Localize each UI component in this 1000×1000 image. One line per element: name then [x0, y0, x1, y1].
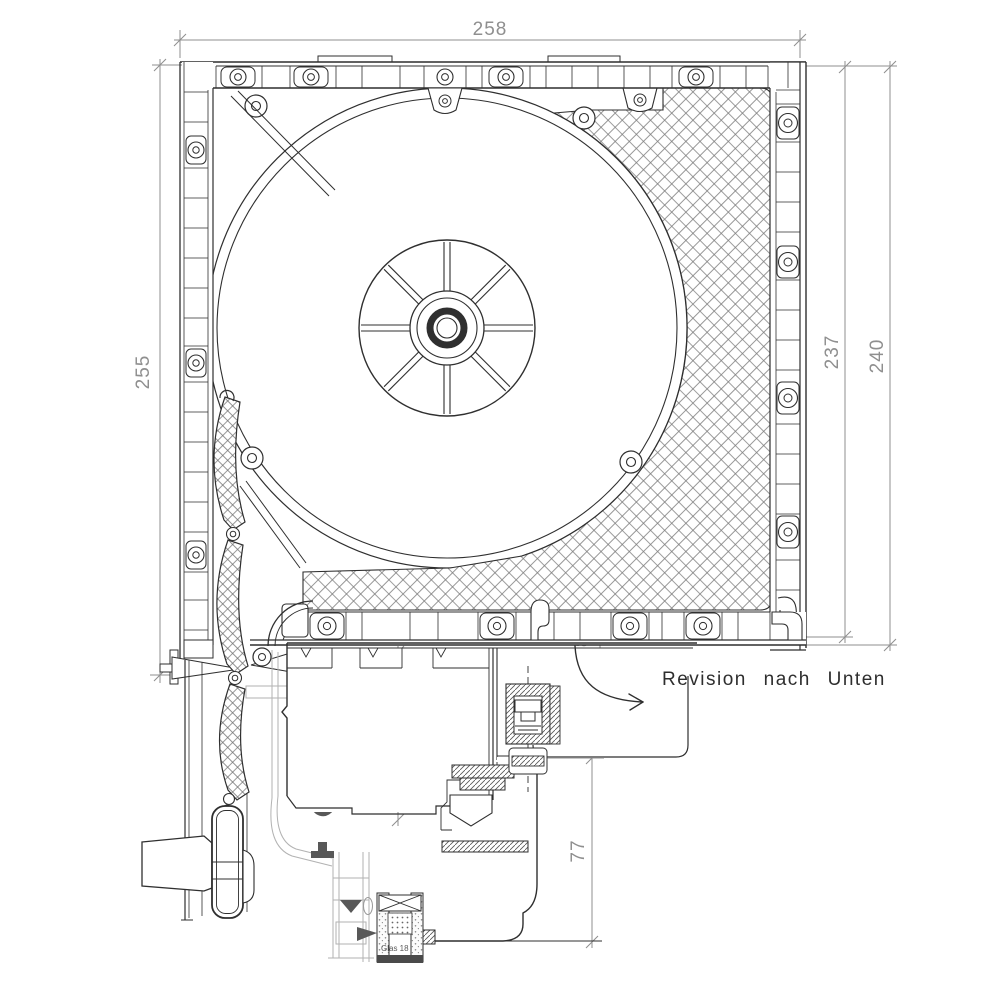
screw-boss [620, 451, 642, 473]
window-section: Glas 18 [246, 643, 697, 963]
corner-braces [231, 91, 335, 568]
glazing-label: Glas 18 [381, 944, 409, 953]
roller-drum-wheel [359, 240, 535, 416]
glazing-base [377, 955, 423, 963]
dim-sash-depth-value: 77 [568, 839, 589, 862]
dim-sash-depth: 77 [537, 752, 604, 948]
screw-boss [573, 107, 595, 129]
mid-mount-tab [623, 88, 657, 112]
dim-right-heights: 237 240 [802, 61, 897, 651]
dim-box-height-left: 255 [133, 59, 182, 683]
screw-boss [241, 447, 263, 469]
roller-shutter-section-drawing: 258 255 237 240 17,8 70 77 [0, 0, 1000, 1000]
revision-note-text: Revision nach Unten [662, 669, 886, 690]
end-slat-bar [212, 806, 254, 918]
dim-box-height-left-value: 255 [133, 355, 154, 390]
slat [214, 397, 245, 530]
slat [220, 684, 249, 800]
dim-height-outer-value: 240 [867, 339, 888, 374]
slat [217, 540, 248, 674]
right-rail [770, 62, 806, 650]
dim-box-width-value: 258 [473, 19, 508, 40]
glazing-unit: Glas 18 [377, 893, 435, 963]
left-rail [160, 62, 213, 684]
cad-drawing-page: 258 255 237 240 17,8 70 77 [0, 0, 1000, 1000]
wall-bracket [142, 836, 212, 891]
dim-height-inner-value: 237 [822, 335, 843, 370]
dim-box-width: 258 [174, 19, 806, 58]
